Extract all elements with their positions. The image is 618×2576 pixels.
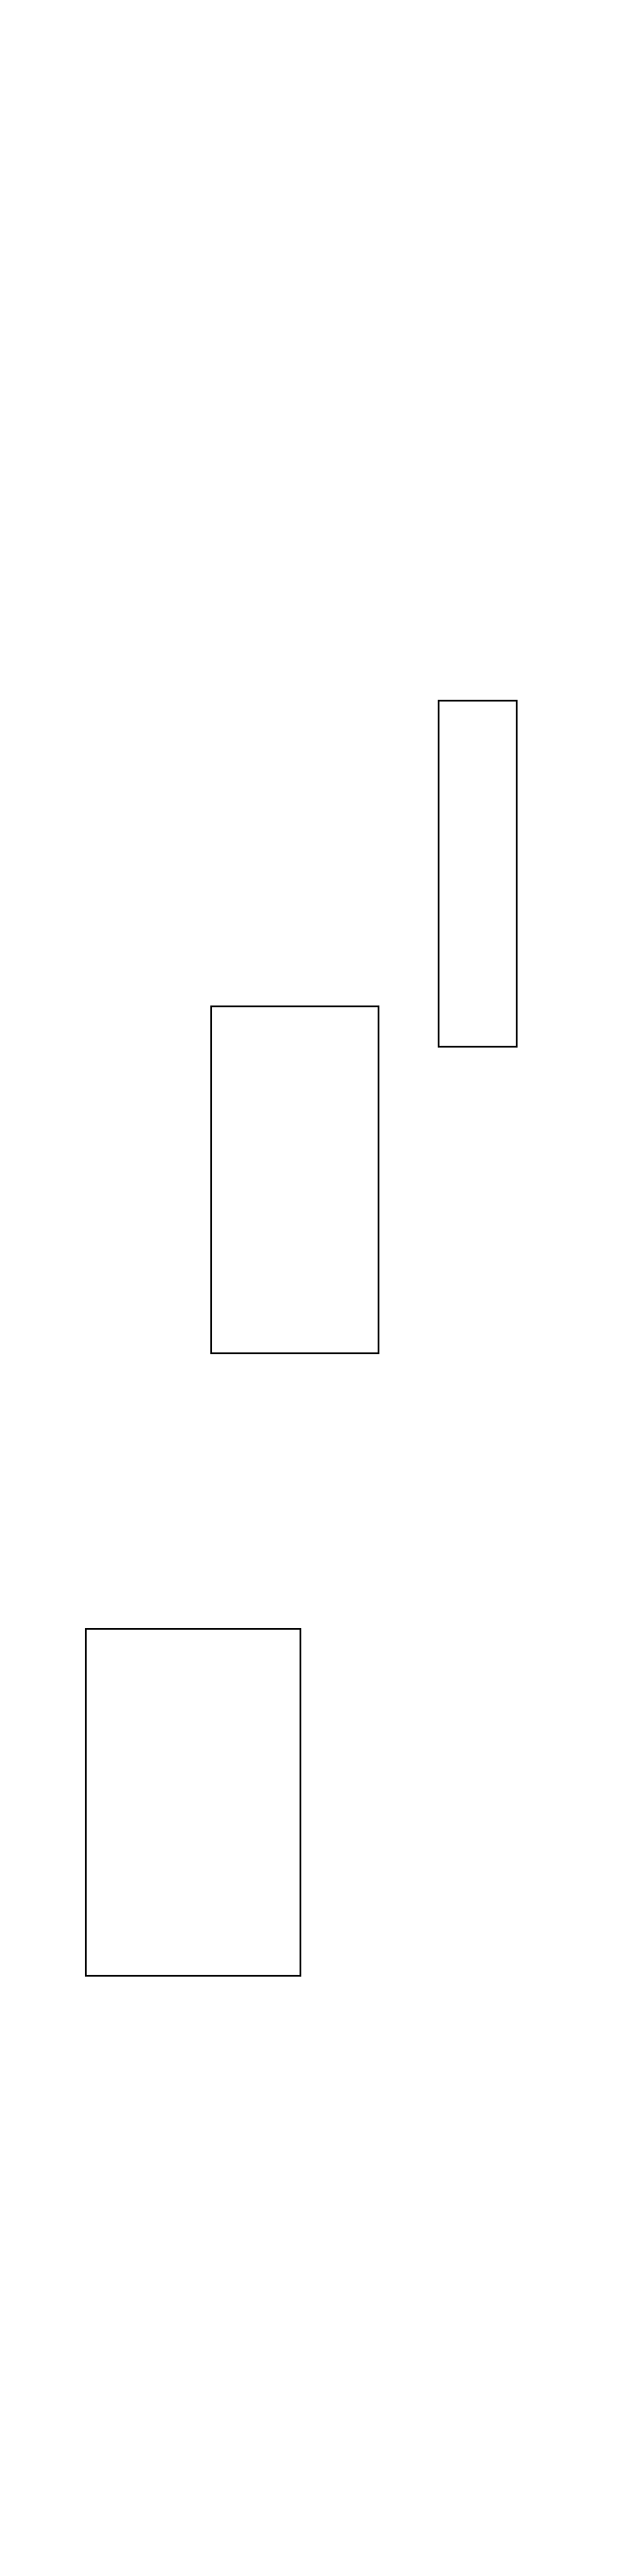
rectangle-medium-center bbox=[210, 1005, 379, 1354]
blank-canvas bbox=[0, 0, 618, 2576]
rectangle-tall-narrow-right bbox=[438, 700, 518, 1048]
rectangle-wide-lower-left bbox=[85, 1628, 301, 1977]
